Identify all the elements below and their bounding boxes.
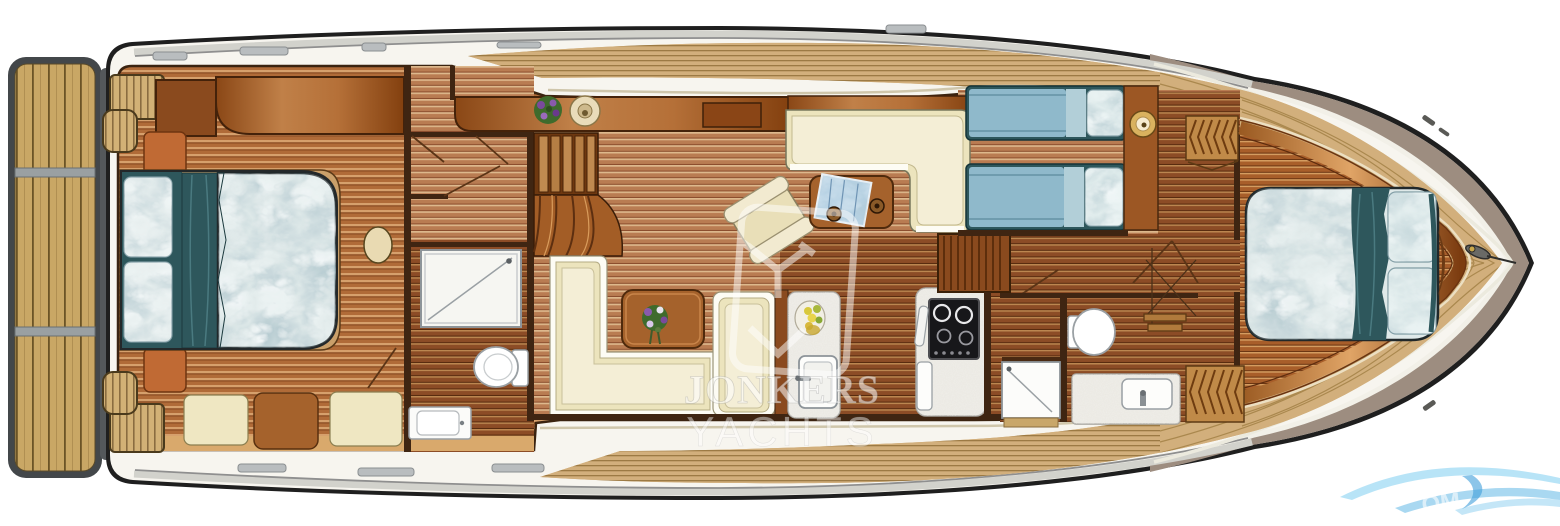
svg-text:OM: OM xyxy=(1420,488,1461,519)
svg-text:JONKERS: JONKERS xyxy=(684,367,880,412)
svg-text:YACHTS: YACHTS xyxy=(686,408,877,455)
